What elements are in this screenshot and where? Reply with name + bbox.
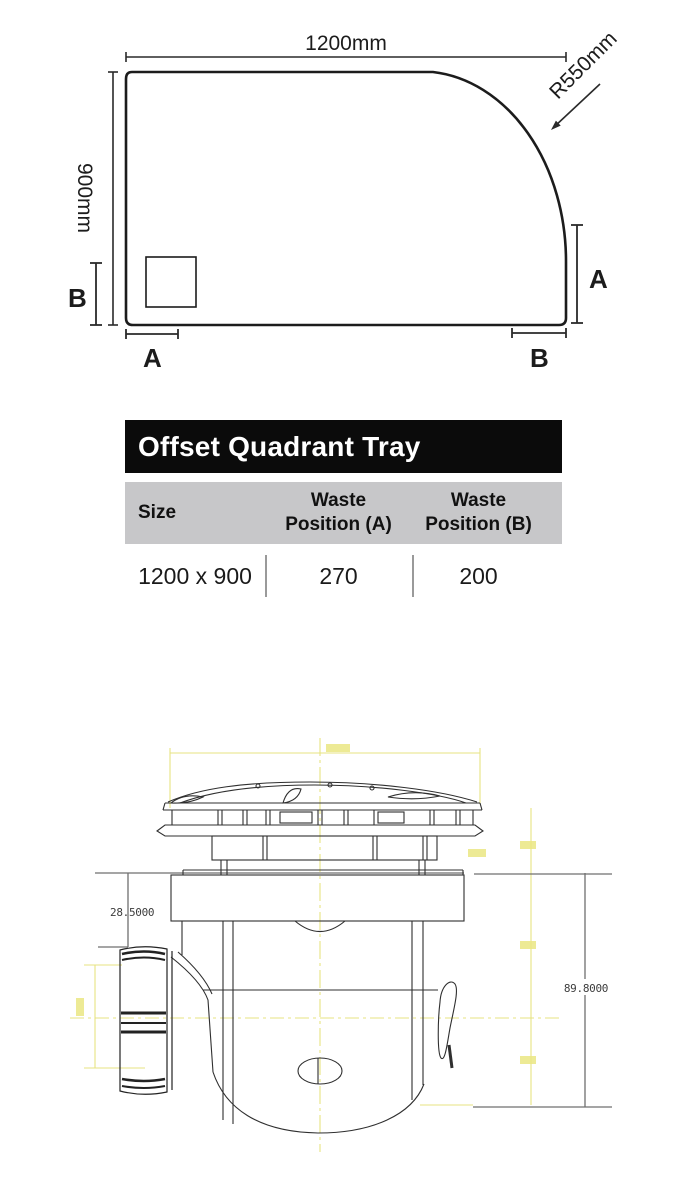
height-dimension-label: 900mm [73, 163, 96, 233]
height-dimension [108, 72, 118, 325]
column-header-waste-a: Waste Position (A) [265, 489, 412, 537]
trap-flange [171, 870, 464, 921]
tray-outline [126, 72, 566, 325]
marker-a-bottom-left: A [143, 343, 162, 373]
product-spec-sheet: 1200mm 900mm R550mm B A [0, 0, 693, 1200]
width-dimension-label: 1200mm [305, 32, 387, 55]
retaining-clip [438, 982, 456, 1059]
marker-a-right: A [589, 264, 608, 294]
marker-b-left: B [68, 283, 87, 313]
column-header-waste-b: Waste Position (B) [412, 489, 545, 537]
flange-height-dimension: 28.5000 [110, 906, 154, 919]
spec-table-title: Offset Quadrant Tray [125, 420, 562, 473]
marker-b-bottom-right: B [530, 343, 549, 373]
dim-b-left [90, 263, 102, 325]
spec-table-header: Size Waste Position (A) Waste Position (… [125, 482, 562, 544]
cad-yellow-lines [70, 738, 560, 1152]
cell-waste-a: 270 [265, 563, 412, 590]
cell-size: 1200 x 900 [125, 563, 265, 590]
trap-body [171, 921, 456, 1133]
waste-position-square [146, 257, 196, 307]
column-header-size: Size [125, 502, 265, 524]
cell-waste-b: 200 [412, 563, 545, 590]
table-row: 1200 x 900 270 200 [125, 544, 562, 608]
dim-a-right [571, 225, 583, 323]
total-height-dimension: 89.8000 [564, 982, 608, 995]
tray-dimension-diagram: 1200mm 900mm R550mm B A [0, 0, 693, 400]
radius-label: R550mm [545, 27, 622, 104]
cap-skirt-slots [172, 810, 473, 825]
column-divider [265, 555, 267, 597]
waste-trap-drawing: 28.5000 89.8000 [0, 700, 693, 1200]
column-divider [412, 555, 414, 597]
outlet-nut [120, 947, 172, 1095]
spec-table: Offset Quadrant Tray Size Waste Position… [125, 420, 562, 608]
dim-b-bottom-right [512, 328, 566, 338]
dim-a-bottom-left [126, 329, 178, 339]
dim-label-illegible [76, 744, 536, 1064]
